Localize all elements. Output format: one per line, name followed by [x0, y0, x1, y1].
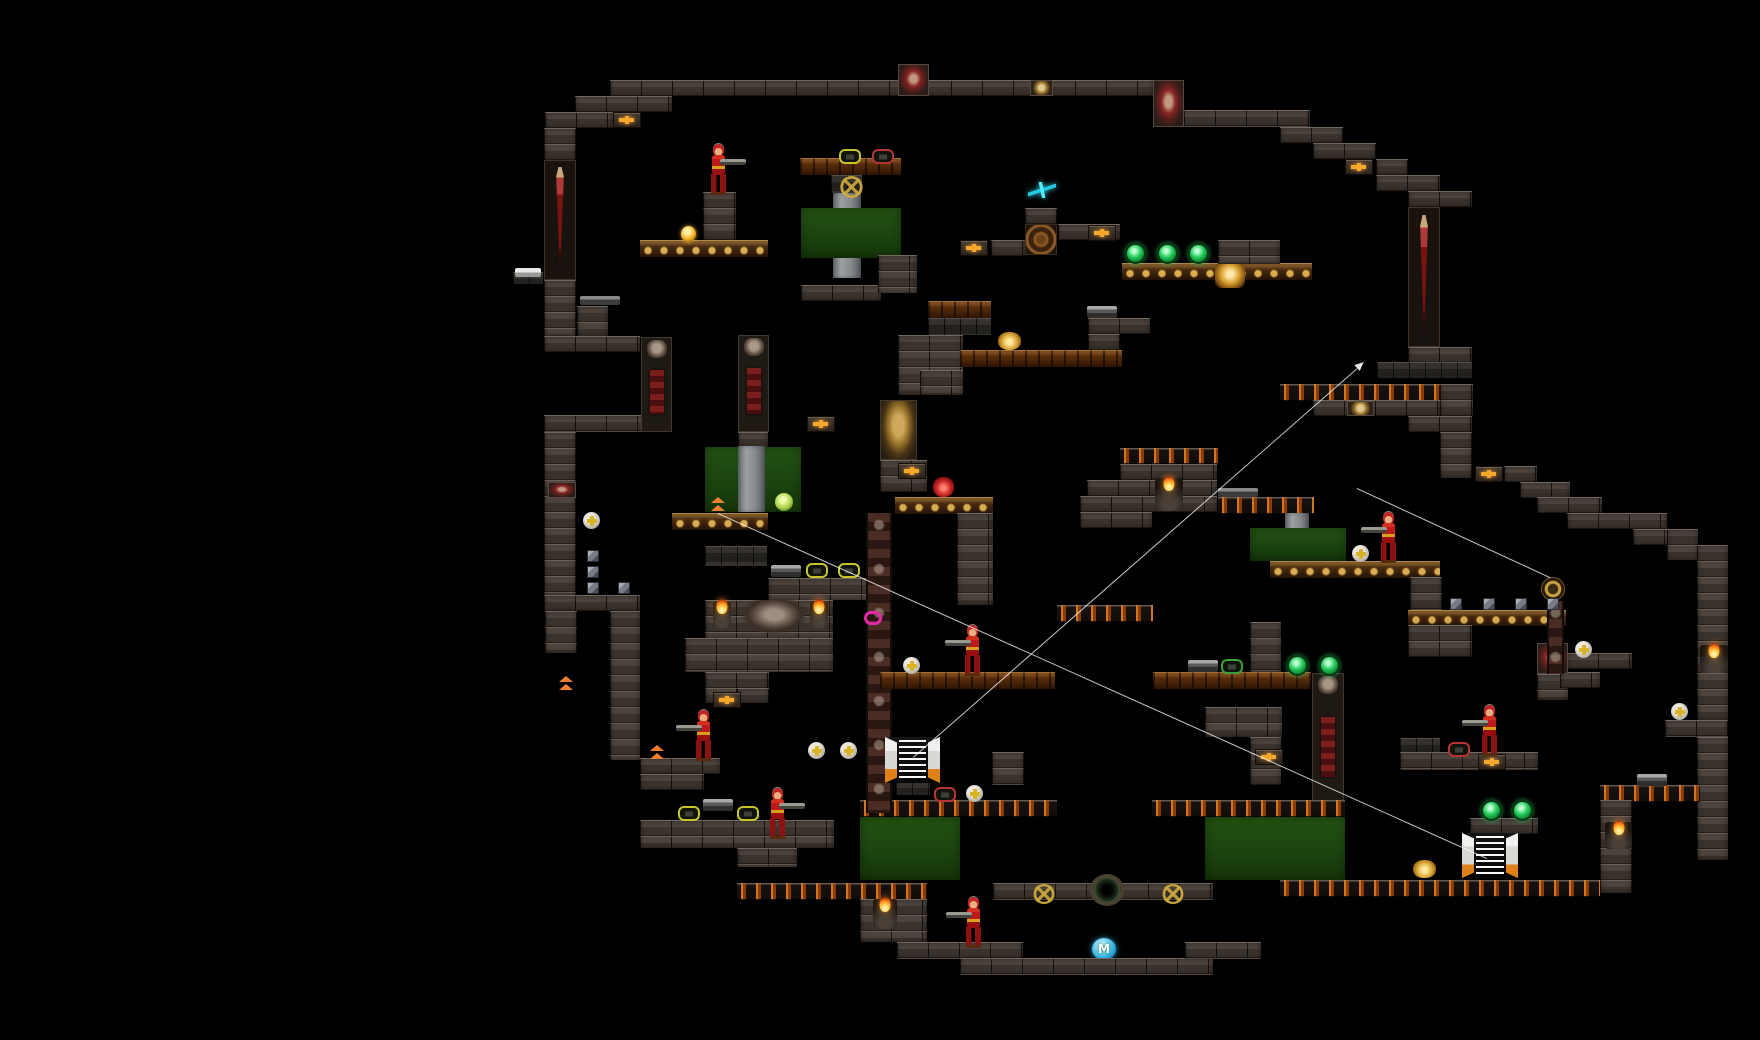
brick-block — [768, 578, 880, 600]
green-door[interactable] — [1205, 817, 1345, 880]
powerup-core-icon — [941, 792, 949, 797]
enemy-soldier-sprite[interactable] — [1377, 512, 1400, 560]
green-gem-pickup[interactable] — [1319, 655, 1340, 676]
gold-idol-pickup[interactable] — [1413, 860, 1436, 878]
brick-block — [685, 638, 833, 672]
green-door[interactable] — [1250, 528, 1346, 561]
brick-block — [1087, 480, 1217, 496]
soldier-torso — [967, 908, 980, 928]
plus-icon — [840, 742, 857, 759]
lava-slot-platform — [737, 883, 927, 900]
plus-icon — [1346, 160, 1372, 174]
brick-block — [1376, 175, 1440, 191]
cobble-block — [705, 546, 767, 566]
wheel-emblem — [1025, 224, 1057, 255]
brick-block — [1470, 818, 1538, 834]
skull-pillar — [641, 337, 672, 432]
green-gem-pickup[interactable] — [1188, 243, 1209, 264]
plus-icon — [1479, 755, 1505, 769]
stone-cube[interactable] — [618, 582, 630, 594]
brick-block — [1280, 127, 1343, 143]
plus-icon — [808, 417, 834, 431]
soldier-torso — [1382, 523, 1395, 543]
health-plus-orb[interactable] — [808, 742, 825, 759]
teleporter-device[interactable] — [1462, 833, 1518, 878]
brick-block — [878, 255, 917, 293]
stone-cube[interactable] — [1483, 598, 1495, 610]
yellow-powerup-pickup[interactable] — [806, 563, 828, 578]
skull-frieze-platform — [672, 513, 768, 530]
soldier-legs — [1482, 735, 1497, 756]
green-gem-pickup[interactable] — [1157, 243, 1178, 264]
brick-block — [1376, 159, 1408, 175]
brick-block — [1080, 512, 1152, 528]
red-powerup-pickup[interactable] — [934, 787, 956, 802]
health-plus-block[interactable] — [960, 240, 988, 256]
soldier-legs — [965, 655, 980, 676]
gold-coin-pickup[interactable] — [681, 226, 696, 242]
soldier-torso — [712, 155, 725, 175]
brick-block — [544, 128, 576, 160]
yellow-powerup-pickup[interactable] — [839, 149, 861, 164]
plus-icon — [1671, 703, 1688, 720]
portal-icon — [1090, 874, 1124, 906]
soldier-legs — [770, 818, 785, 839]
white-gun-pickup[interactable] — [515, 268, 541, 277]
brick-block — [544, 280, 576, 336]
door-guide-column — [738, 446, 765, 512]
gun-pickup[interactable] — [1087, 306, 1117, 318]
plus-icon — [808, 742, 825, 759]
sword-pillar — [544, 160, 576, 280]
brick-block — [1313, 400, 1440, 416]
enemy-soldier-sprite[interactable] — [707, 144, 730, 192]
plus-icon — [1476, 467, 1502, 481]
red-powerup-pickup[interactable] — [1448, 742, 1470, 757]
brick-block — [545, 611, 577, 653]
brick-block — [575, 96, 672, 112]
gold-skull-icon — [1215, 264, 1245, 288]
green-gem-pickup[interactable] — [1481, 800, 1502, 821]
soldier-legs — [696, 740, 711, 761]
powerup-core-icon — [1455, 747, 1463, 752]
powerup-core-icon — [879, 154, 887, 159]
skull-cap-icon — [647, 340, 667, 358]
health-plus-block[interactable] — [1345, 159, 1373, 175]
soldier-chainsaw-icon — [676, 725, 702, 731]
soldier-chainsaw-icon — [945, 640, 971, 646]
green-powerup-pickup[interactable] — [1221, 659, 1243, 674]
cobble-block — [1400, 738, 1440, 753]
flame-icon — [1613, 820, 1624, 835]
brick-block — [640, 774, 704, 790]
rifle-pickup[interactable] — [1218, 488, 1258, 497]
cobble-block — [928, 318, 991, 335]
red-drape-icon — [747, 368, 761, 414]
yellow-powerup-pickup[interactable] — [678, 806, 700, 821]
gold-idol-pickup[interactable] — [998, 332, 1021, 350]
lava-slot-platform — [1152, 800, 1345, 817]
stone-cube[interactable] — [1450, 598, 1462, 610]
torch-niche — [1605, 822, 1632, 849]
skull-cap-icon — [1318, 676, 1338, 694]
red-powerup-pickup[interactable] — [872, 149, 894, 164]
goat-skull-art — [743, 600, 805, 633]
brick-block — [1560, 672, 1600, 688]
pentagram-gear-icon — [1033, 884, 1055, 904]
red-drape-icon — [650, 370, 664, 415]
red-drape-icon — [1321, 717, 1335, 777]
health-plus-block[interactable] — [807, 416, 835, 432]
brick-block — [1313, 143, 1376, 159]
skull-frieze-platform — [640, 240, 768, 257]
health-plus-orb[interactable] — [1575, 641, 1592, 658]
green-gem-pickup[interactable] — [1512, 800, 1533, 821]
brick-block — [1400, 752, 1538, 770]
rifle-pickup[interactable] — [580, 296, 620, 305]
brick-block — [544, 432, 576, 595]
torch-niche — [713, 601, 731, 628]
cobble-block — [1377, 362, 1472, 378]
flame-icon — [814, 599, 825, 614]
brick-block — [1520, 482, 1570, 498]
skull-cap-icon — [744, 338, 764, 356]
plus-icon — [966, 785, 983, 802]
soldier-torso — [966, 636, 979, 656]
soldier-legs — [966, 927, 981, 948]
enemy-soldier-sprite[interactable] — [962, 897, 985, 945]
brick-block — [544, 595, 640, 611]
lava-slot-platform — [1280, 384, 1440, 401]
goat-emblem-block — [548, 482, 576, 498]
health-plus-block[interactable] — [613, 112, 641, 128]
health-plus-orb[interactable] — [1352, 545, 1369, 562]
brick-block — [1408, 416, 1472, 432]
gun-pickup[interactable] — [771, 565, 801, 577]
brick-block — [897, 942, 1023, 959]
powerup-core-icon — [813, 568, 821, 573]
plus-icon — [714, 693, 740, 707]
soldier-chainsaw-icon — [1361, 527, 1387, 533]
torch-niche — [1700, 645, 1728, 673]
soldier-chainsaw-icon — [779, 803, 805, 809]
brick-block — [920, 370, 963, 395]
enemy-soldier-sprite[interactable] — [692, 710, 715, 758]
soldier-legs — [1381, 542, 1396, 563]
goat-emblem-block — [1153, 80, 1184, 127]
skull-pillar — [738, 335, 769, 432]
brick-block — [1408, 347, 1472, 363]
stone-cube[interactable] — [587, 566, 599, 578]
brick-block — [1567, 513, 1667, 529]
teleporter-rungs-icon — [899, 740, 926, 780]
green-gem-pickup[interactable] — [1125, 243, 1146, 264]
green-orb-pickup[interactable] — [775, 493, 793, 511]
plus-icon — [961, 241, 987, 255]
lava-slot-platform — [1120, 448, 1218, 464]
stone-cube[interactable] — [587, 582, 599, 594]
health-plus-block[interactable] — [1088, 225, 1116, 241]
torch-niche — [873, 899, 897, 929]
plus-icon — [899, 464, 925, 478]
brick-block — [1088, 334, 1120, 350]
brick-block — [992, 752, 1024, 785]
plus-icon — [614, 113, 640, 127]
stone-cube[interactable] — [587, 550, 599, 562]
brick-block — [1218, 240, 1280, 264]
magenta-ring-pickup[interactable] — [864, 611, 882, 625]
lava-slot-platform — [1218, 497, 1314, 514]
goat-emblem-block — [898, 64, 929, 96]
plus-icon — [903, 657, 920, 674]
jump-pad-arrows-icon[interactable] — [710, 497, 725, 511]
brick-block — [1697, 545, 1728, 720]
skull-emblem-block — [1030, 80, 1053, 96]
brick-block — [1408, 625, 1472, 657]
brick-block — [703, 192, 736, 240]
green-gem-pickup[interactable] — [1287, 655, 1308, 676]
soldier-chainsaw-icon — [720, 159, 746, 165]
powerup-core-icon — [1228, 664, 1236, 669]
wood-platform — [1153, 672, 1311, 689]
skull-frieze-platform — [1408, 610, 1566, 626]
enemy-soldier-sprite[interactable] — [1478, 705, 1501, 753]
plus-icon — [1089, 226, 1115, 240]
plus-icon — [583, 512, 600, 529]
brick-block — [1205, 707, 1282, 737]
brick-block — [737, 688, 769, 703]
brick-block — [640, 820, 834, 848]
health-plus-orb[interactable] — [583, 512, 600, 529]
cobble-block — [896, 781, 930, 795]
torch-niche — [810, 601, 828, 628]
pentagram-gear-icon — [840, 176, 863, 198]
yellow-powerup-pickup[interactable] — [737, 806, 759, 821]
brick-block — [1665, 720, 1728, 737]
brick-block — [1697, 737, 1728, 860]
flame-icon — [717, 599, 728, 614]
brick-block — [1667, 529, 1698, 560]
health-plus-block[interactable] — [1475, 466, 1503, 482]
brick-block — [1088, 318, 1150, 334]
skull-frieze-platform — [1270, 561, 1440, 578]
brick-block — [610, 80, 1153, 96]
health-plus-block[interactable] — [898, 463, 926, 479]
brick-block — [610, 611, 640, 760]
brick-block — [545, 112, 613, 128]
health-plus-orb[interactable] — [1671, 703, 1688, 720]
brick-block — [960, 958, 1213, 975]
ornate-pillar — [1547, 601, 1564, 674]
m-marker-sphere[interactable]: M — [1092, 938, 1116, 960]
brick-block — [1537, 497, 1602, 513]
health-plus-orb[interactable] — [903, 657, 920, 674]
brick-block — [1410, 577, 1442, 610]
brick-block — [957, 513, 993, 605]
soldier-chainsaw-icon — [946, 912, 972, 918]
flame-icon — [1709, 643, 1720, 658]
soldier-chainsaw-icon — [1462, 720, 1488, 726]
health-plus-orb[interactable] — [966, 785, 983, 802]
brick-block — [1408, 191, 1472, 207]
brick-block — [801, 285, 881, 301]
brick-block — [1440, 384, 1473, 416]
plus-icon — [1352, 545, 1369, 562]
brick-block — [737, 848, 797, 867]
skull-frieze-platform — [895, 497, 993, 514]
stone-cube[interactable] — [1547, 598, 1559, 610]
pentagram-gear-icon — [1162, 884, 1184, 904]
gun-pickup[interactable] — [1637, 774, 1667, 786]
brick-block — [1440, 432, 1472, 478]
level-map-canvas: M — [0, 0, 1760, 1040]
brick-block — [544, 336, 640, 352]
brick-block — [1025, 208, 1057, 224]
lava-slot-platform — [1280, 880, 1600, 897]
teleporter-device[interactable] — [885, 737, 940, 783]
enemy-soldier-sprite[interactable] — [766, 788, 789, 836]
green-door[interactable] — [860, 817, 960, 880]
skull-emblem-block — [1347, 401, 1374, 416]
soldier-legs — [711, 174, 726, 195]
health-plus-block[interactable] — [713, 692, 741, 708]
brick-block — [738, 432, 768, 447]
jump-pad-arrows-icon[interactable] — [649, 745, 664, 759]
sword-blade-icon — [1418, 215, 1430, 339]
wood-platform — [928, 301, 991, 318]
flame-icon — [1164, 476, 1175, 491]
brick-block — [991, 240, 1025, 256]
powerup-core-icon — [744, 811, 752, 816]
green-door[interactable] — [801, 208, 901, 258]
gun-pickup[interactable] — [1188, 660, 1218, 672]
powerup-core-icon — [846, 154, 854, 159]
health-plus-block[interactable] — [1478, 754, 1506, 770]
soldier-torso — [1483, 716, 1496, 736]
demon-face-emblem — [880, 400, 917, 460]
flame-icon — [880, 897, 891, 912]
gun-pickup[interactable] — [703, 799, 733, 811]
stone-cube[interactable] — [1515, 598, 1527, 610]
wood-platform — [960, 350, 1122, 367]
sword-pillar — [1408, 207, 1440, 347]
shuriken-pickup[interactable] — [1028, 182, 1056, 198]
brick-block — [1504, 466, 1537, 482]
powerup-core-icon — [685, 811, 693, 816]
soldier-torso — [771, 799, 784, 819]
sword-blade-icon — [554, 167, 566, 273]
brick-block — [577, 306, 608, 336]
brick-block — [1250, 622, 1281, 672]
health-plus-orb[interactable] — [840, 742, 857, 759]
red-idol-pickup[interactable] — [933, 477, 954, 497]
soldier-torso — [697, 721, 710, 741]
torch-niche — [1155, 478, 1183, 511]
jump-pad-arrows-icon[interactable] — [558, 676, 573, 690]
plus-icon — [1575, 641, 1592, 658]
brick-block — [1185, 942, 1261, 959]
